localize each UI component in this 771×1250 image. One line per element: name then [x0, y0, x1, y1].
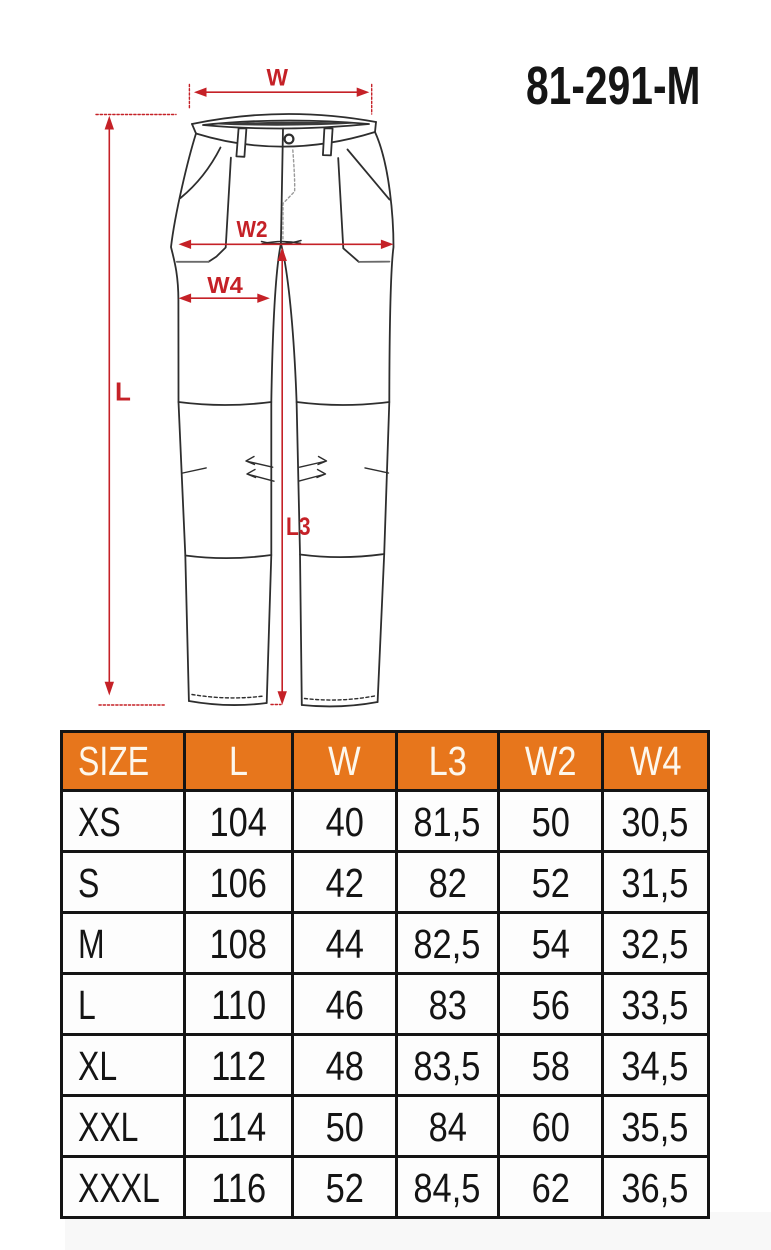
- svg-text:W4: W4: [207, 272, 243, 298]
- svg-text:W2: W2: [237, 216, 268, 242]
- svg-text:L3: L3: [286, 513, 311, 541]
- svg-text:L: L: [115, 376, 131, 406]
- svg-text:W: W: [267, 64, 289, 91]
